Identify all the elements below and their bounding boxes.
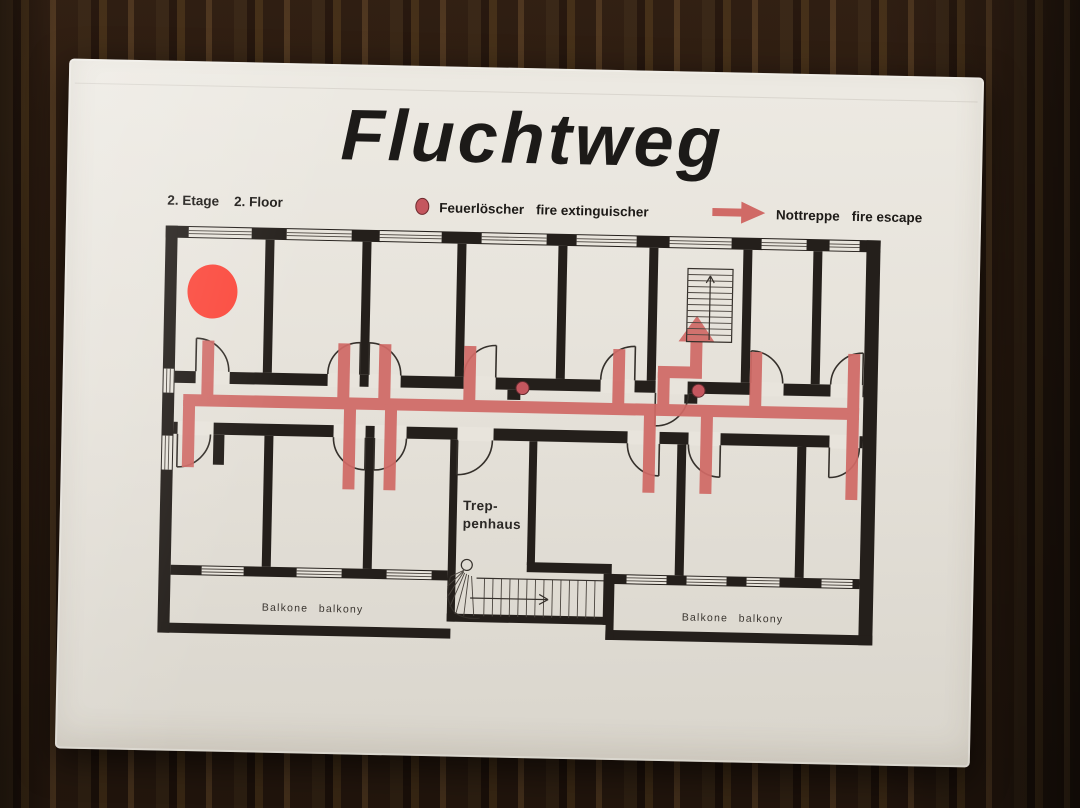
escape-route [181,305,861,500]
floor-plan: Trep- penhaus Balkone balkony Balkone ba… [153,220,898,655]
stairwell-label-line2: penhaus [463,516,522,532]
fire-extinguisher-dot-stairs [692,384,705,397]
balcony-left-label-de: Balkone [262,602,309,615]
legend-escape-de: Nottreppe [776,207,840,223]
balcony-left-label-en: balkony [319,603,364,616]
fire-extinguisher-dot-corridor [516,381,529,394]
balcony-right-label-de: Balkone [682,611,729,624]
escape-plan-sign: Fluchtweg 2. Etage2. Floor Feuerlöscherf… [55,58,984,767]
sign-title: Fluchtweg [67,88,984,189]
balcony-right-label-en: balkony [739,613,784,626]
floor-label-en: 2. Floor [234,194,283,210]
legend-extinguisher-en: fire extinguischer [536,202,649,219]
floor-label: 2. Etage2. Floor [167,193,283,210]
legend-extinguisher: Feuerlöscherfire extinguischer [415,198,649,220]
floor-label-de: 2. Etage [167,193,219,209]
wood-door-background: Fluchtweg 2. Etage2. Floor Feuerlöscherf… [0,0,1080,808]
legend-escape: Nottreppefire escape [712,200,923,228]
fire-extinguisher-icon [415,198,429,215]
escape-arrow-icon [712,200,766,225]
legend-extinguisher-de: Feuerlöscher [439,200,524,217]
legend-escape-en: fire escape [852,209,923,225]
stairwell-label-line1: Trep- [463,498,498,514]
fire-extinguisher-dot-large [187,264,238,319]
